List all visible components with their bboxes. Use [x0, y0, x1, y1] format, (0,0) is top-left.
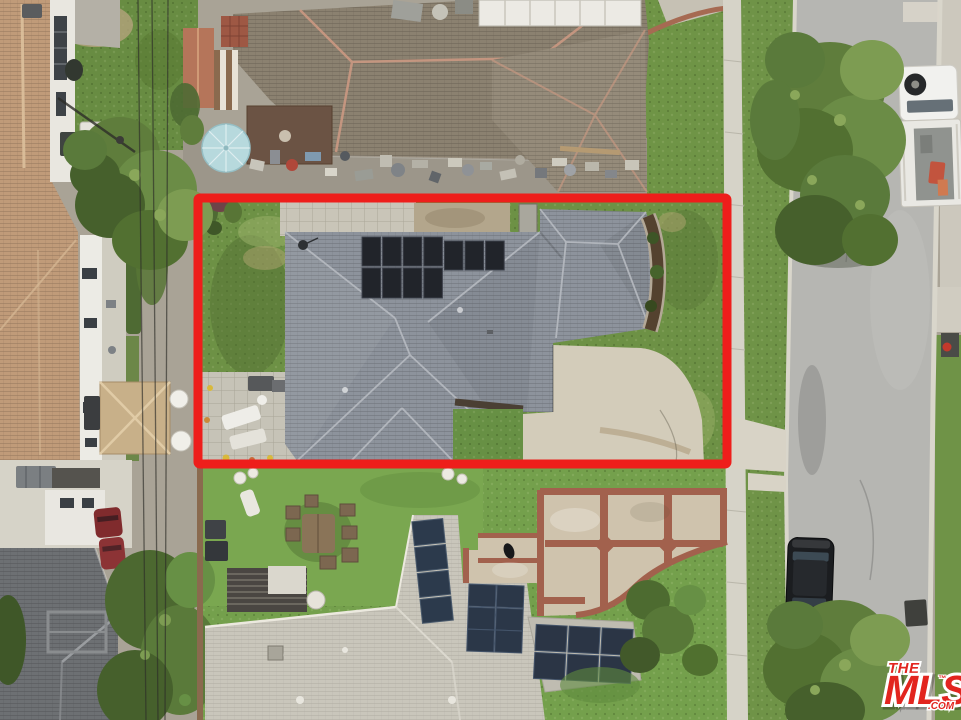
pergola — [227, 566, 307, 612]
striped-awning — [214, 50, 238, 110]
brick-chimney — [221, 16, 248, 47]
walk-crossing — [748, 473, 786, 492]
mls-logo-com: .COM — [928, 701, 955, 712]
trash-bins — [16, 466, 56, 488]
mls-logo-tm: ™ — [938, 674, 946, 683]
aerial-photo-canvas: MLS THE MLS ™ .COM — [0, 0, 961, 720]
mls-watermark: MLS THE MLS ™ .COM — [884, 660, 961, 715]
patio-umbrella-closed — [170, 390, 188, 408]
solar-group-left — [467, 584, 524, 653]
rooftop-ac-unit — [22, 4, 42, 18]
storm-drain — [904, 599, 928, 626]
fire-hydrant — [943, 343, 952, 352]
utility-pole — [116, 136, 124, 144]
fence-line — [197, 466, 203, 720]
backyard-patio — [202, 372, 297, 463]
utility-truck — [897, 65, 961, 207]
aerial-photo: MLS THE MLS ™ .COM — [0, 0, 961, 720]
waste-bins — [205, 520, 226, 539]
blue-patio-umbrella — [202, 124, 250, 172]
white-trailer — [479, 0, 641, 26]
